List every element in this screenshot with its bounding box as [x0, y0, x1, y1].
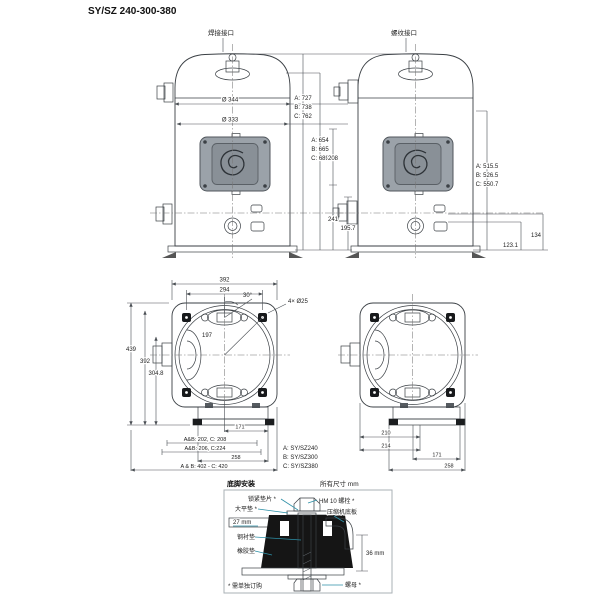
dim-height-b: B: 738	[294, 105, 312, 111]
nut-label: 螺母 *	[345, 581, 362, 589]
dim-foot-206-224: A&B: 206, C:224	[185, 446, 226, 452]
dim-241: 241	[328, 217, 339, 223]
front-view-threaded	[333, 44, 486, 258]
welded-port-label: 焊接接口	[208, 28, 234, 37]
height-36mm-label: 36 mm	[366, 551, 384, 557]
dim-foot-210: 210	[381, 431, 390, 437]
dim-height-a: A: 727	[294, 96, 312, 102]
dim-foot-214: 214	[381, 444, 390, 450]
front-view-welded	[156, 44, 303, 258]
dim-foot-258-right: 258	[444, 464, 453, 470]
dim-holes-4x25: 4× Ø25	[288, 299, 309, 305]
page-title: SY/SZ 240-300-380	[88, 6, 177, 17]
dim-radius-197: 197	[202, 333, 213, 339]
dim-suction-b: B: 526.5	[476, 173, 499, 179]
legend-c: C: SY/SZ380	[283, 464, 319, 470]
dim-suction-c: C: 550.7	[476, 182, 499, 188]
technical-drawing: SY/SZ 240-300-380 焊接接口 螺纹接口 Ø 344 Ø 333	[0, 0, 600, 600]
compressor-front-welded-body	[162, 44, 303, 258]
dim-mid-b: B: 665	[311, 147, 329, 153]
dim-height-c: C: 762	[294, 114, 312, 120]
lock-washer-label: 锁紧垫片 *	[248, 495, 277, 503]
top-view-right-body	[338, 294, 478, 407]
dim-134: 134	[531, 233, 542, 239]
legend-b: B: SY/SZ300	[283, 455, 318, 461]
units-note: 所有尺寸 mm	[320, 479, 359, 488]
port-callouts: 焊接接口 螺纹接口	[208, 28, 417, 52]
dim-foot-total: A & B: 402 - C: 420	[180, 464, 227, 470]
dim-439: 439	[126, 347, 137, 353]
dim-dia-333: Ø 333	[222, 118, 239, 124]
compressor-front-threaded-body	[345, 44, 486, 258]
dim-195-7: 195.7	[340, 226, 356, 232]
top-view-left: 197 30° 4× Ø25 392 294 439 392 304.8 171…	[126, 278, 309, 472]
dim-foot-171-right: 171	[432, 453, 441, 459]
top-view-right: 210 214 171 258	[338, 294, 478, 471]
dim-304-8: 304.8	[148, 371, 164, 377]
dim-208: 208	[328, 156, 339, 162]
dim-foot-171: 171	[235, 425, 244, 431]
dim-foot-202-208: A&B: 202, C: 208	[184, 437, 227, 443]
steel-sleeve-label: 钢衬垫	[237, 533, 255, 541]
dim-392-top: 392	[219, 278, 230, 284]
dim-392-left: 392	[140, 359, 151, 365]
base-plate-label: 压缩机底板	[327, 508, 357, 516]
dim-foot-258: 258	[231, 455, 240, 461]
detail-footnote: * 需单独订购	[228, 582, 262, 590]
mounting-detail-section: 底脚安装 所有尺寸 mm 锁紧垫片 * HM 10 螺栓 *	[224, 479, 392, 593]
dim-suction-a: A: 515.5	[476, 164, 499, 170]
top-view-left-body	[150, 294, 290, 407]
rubber-grommet-label: 橡胶垫	[237, 547, 255, 555]
dim-mid-c: C: 689	[311, 156, 329, 162]
front-left-dimensions: Ø 344 Ø 333 A: 727 B: 738 C: 762 A: 654 …	[150, 54, 416, 250]
dim-mid-a: A: 654	[311, 138, 329, 144]
flat-washer-label: 大平垫 *	[235, 505, 258, 513]
drawing-page: SY/SZ 240-300-380 焊接接口 螺纹接口 Ø 344 Ø 333	[0, 0, 600, 600]
dim-123-1: 123.1	[503, 243, 519, 249]
legend-a: A: SY/SZ240	[283, 446, 318, 452]
dim-dia-344: Ø 344	[222, 98, 239, 104]
threaded-port-label: 螺纹接口	[391, 28, 417, 37]
bolt-label: HM 10 螺栓 *	[319, 497, 355, 505]
mounting-detail-title: 底脚安装	[227, 479, 255, 488]
dim-294: 294	[219, 288, 230, 294]
plate-thickness-label: 27 mm	[233, 520, 251, 526]
variant-legend: A: SY/SZ240 B: SY/SZ300 C: SY/SZ380	[283, 446, 319, 470]
